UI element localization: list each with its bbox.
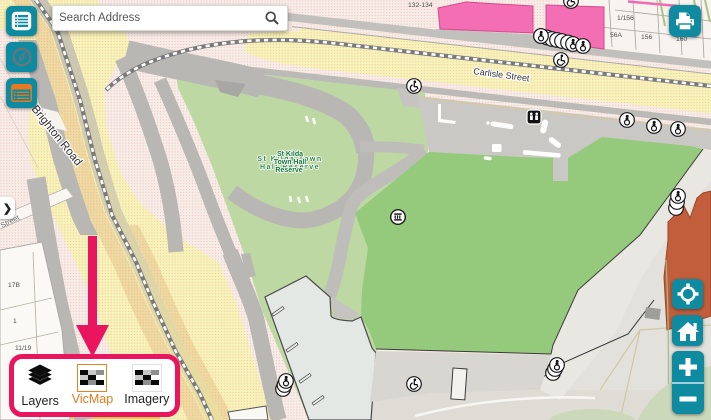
svg-text:1/156: 1/156 [617, 15, 634, 22]
svg-text:132-134: 132-134 [408, 2, 433, 9]
svg-text:1: 1 [13, 318, 17, 325]
svg-text:11/19: 11/19 [15, 345, 32, 352]
svg-text:St Kilda: St Kilda [277, 151, 303, 158]
svg-text:156: 156 [641, 34, 652, 41]
svg-text:160: 160 [676, 36, 687, 43]
svg-text:17B: 17B [8, 282, 20, 289]
svg-text:56A: 56A [610, 32, 622, 39]
svg-text:Reserve: Reserve [275, 167, 302, 174]
svg-text:Town Hall: Town Hall [274, 159, 307, 166]
